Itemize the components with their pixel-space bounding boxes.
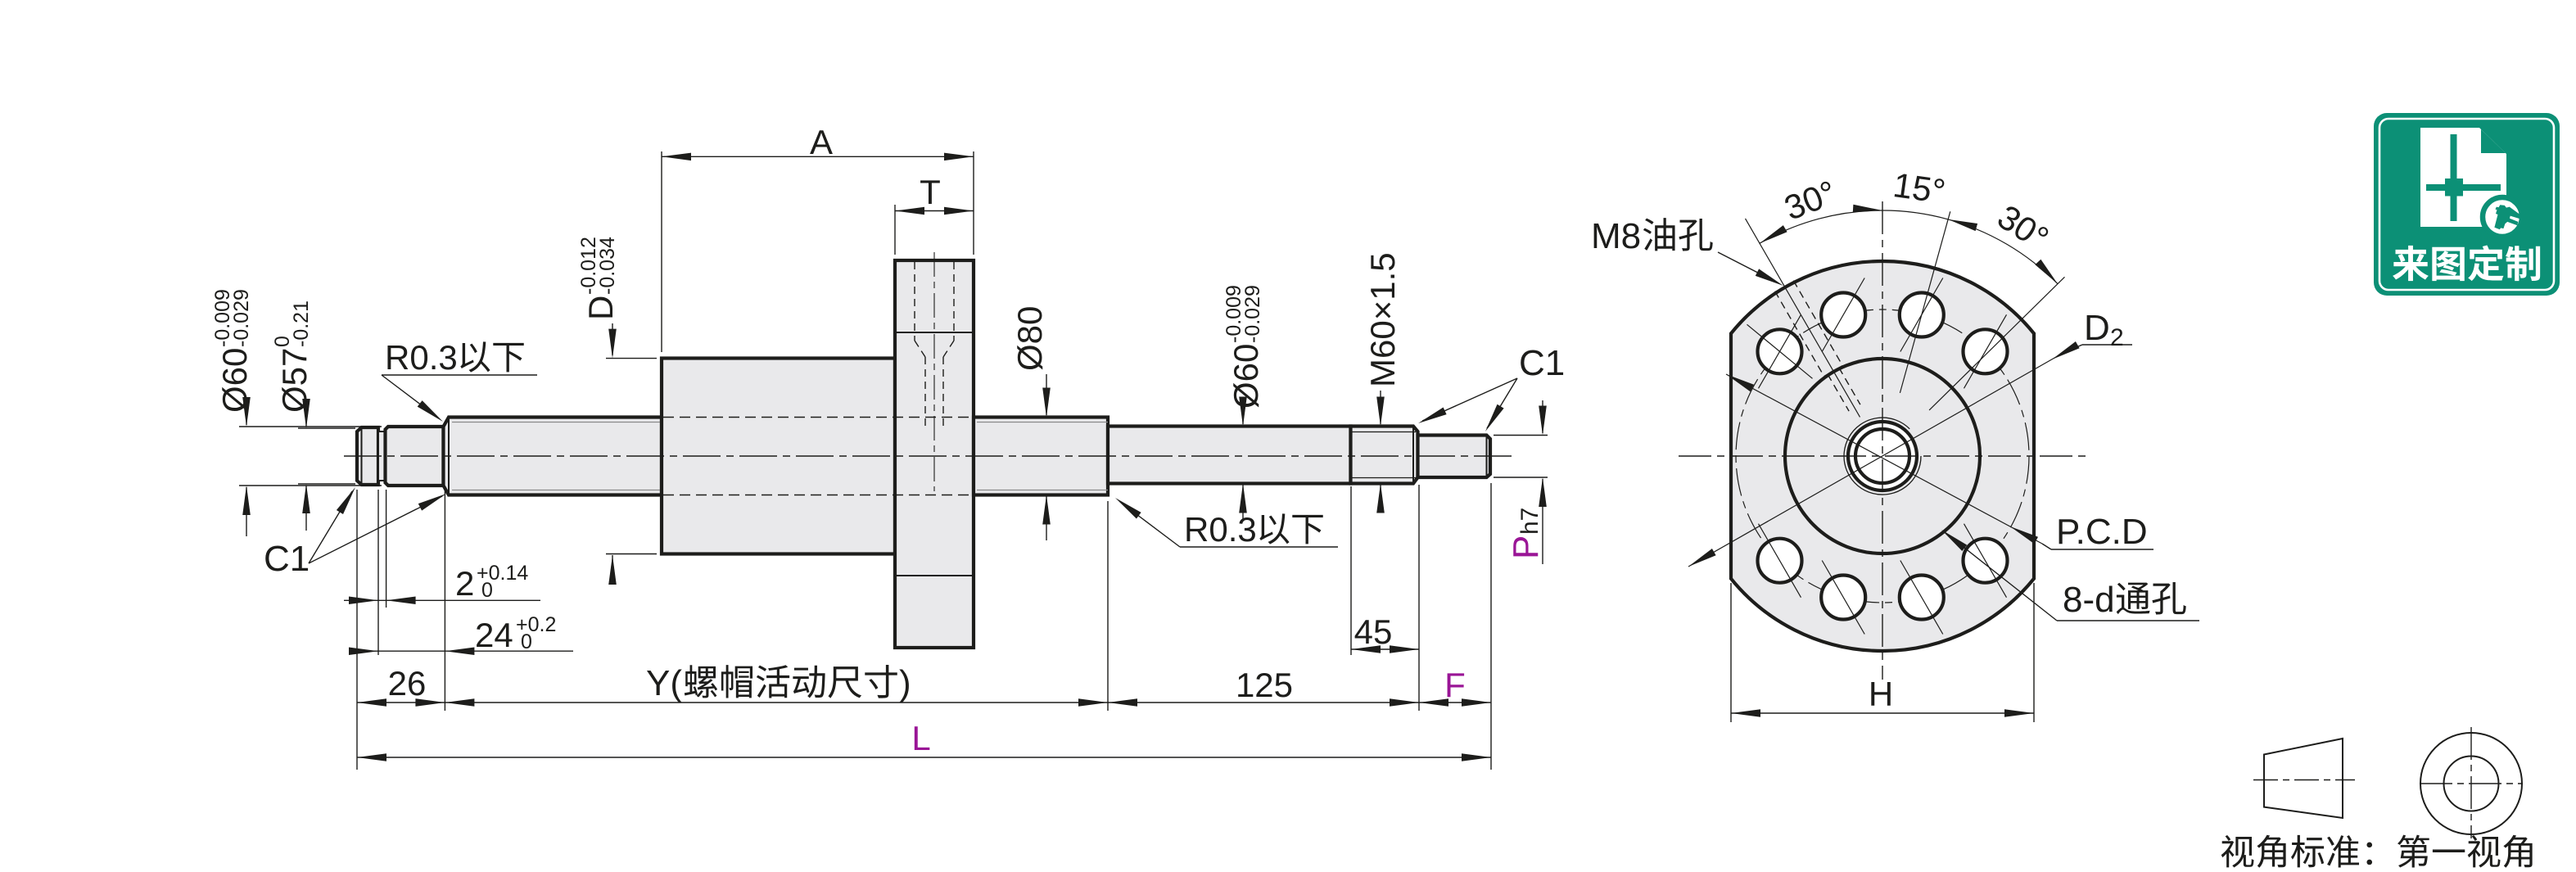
svg-text:A: A [810, 123, 833, 161]
svg-text:15°: 15° [1891, 165, 1947, 210]
svg-text:h7: h7 [1516, 508, 1543, 535]
svg-text:C1: C1 [264, 539, 310, 579]
svg-text:M60×1.5: M60×1.5 [1363, 252, 1402, 387]
svg-text:2: 2 [455, 564, 474, 603]
svg-text:L: L [911, 719, 930, 757]
svg-text:R0.3: R0.3 [385, 338, 458, 377]
svg-text:24: 24 [475, 616, 513, 654]
svg-text:M8: M8 [1591, 216, 1641, 256]
svg-text:R0.3: R0.3 [1184, 510, 1257, 549]
svg-text:-0.029: -0.029 [1241, 285, 1264, 343]
svg-text:P: P [1506, 535, 1546, 559]
svg-text:F: F [1444, 666, 1466, 704]
svg-text:Ø80: Ø80 [1010, 306, 1049, 371]
svg-text:C1: C1 [1519, 343, 1565, 383]
svg-text:2: 2 [2110, 324, 2124, 351]
svg-text:Y(: Y( [646, 663, 682, 703]
svg-text:Ø60: Ø60 [215, 348, 254, 413]
svg-text:26: 26 [388, 664, 427, 703]
svg-text:H: H [1869, 675, 1893, 713]
svg-text:0: 0 [481, 579, 493, 602]
svg-text:Ø57: Ø57 [275, 348, 314, 413]
svg-text:): ) [899, 663, 911, 703]
svg-text:P.C.D: P.C.D [2056, 512, 2148, 552]
svg-text:D: D [2084, 308, 2110, 348]
svg-text:-0.21: -0.21 [290, 300, 313, 347]
svg-text:0: 0 [521, 630, 532, 653]
svg-text:125: 125 [1236, 666, 1293, 704]
svg-text:-0.034: -0.034 [596, 237, 619, 295]
svg-text:-0.029: -0.029 [230, 289, 253, 347]
svg-text:D: D [581, 296, 620, 320]
svg-text:45: 45 [1354, 612, 1393, 651]
svg-text:T: T [920, 173, 941, 211]
svg-text:8-d: 8-d [2063, 580, 2115, 620]
svg-text:Ø60: Ø60 [1227, 344, 1265, 409]
